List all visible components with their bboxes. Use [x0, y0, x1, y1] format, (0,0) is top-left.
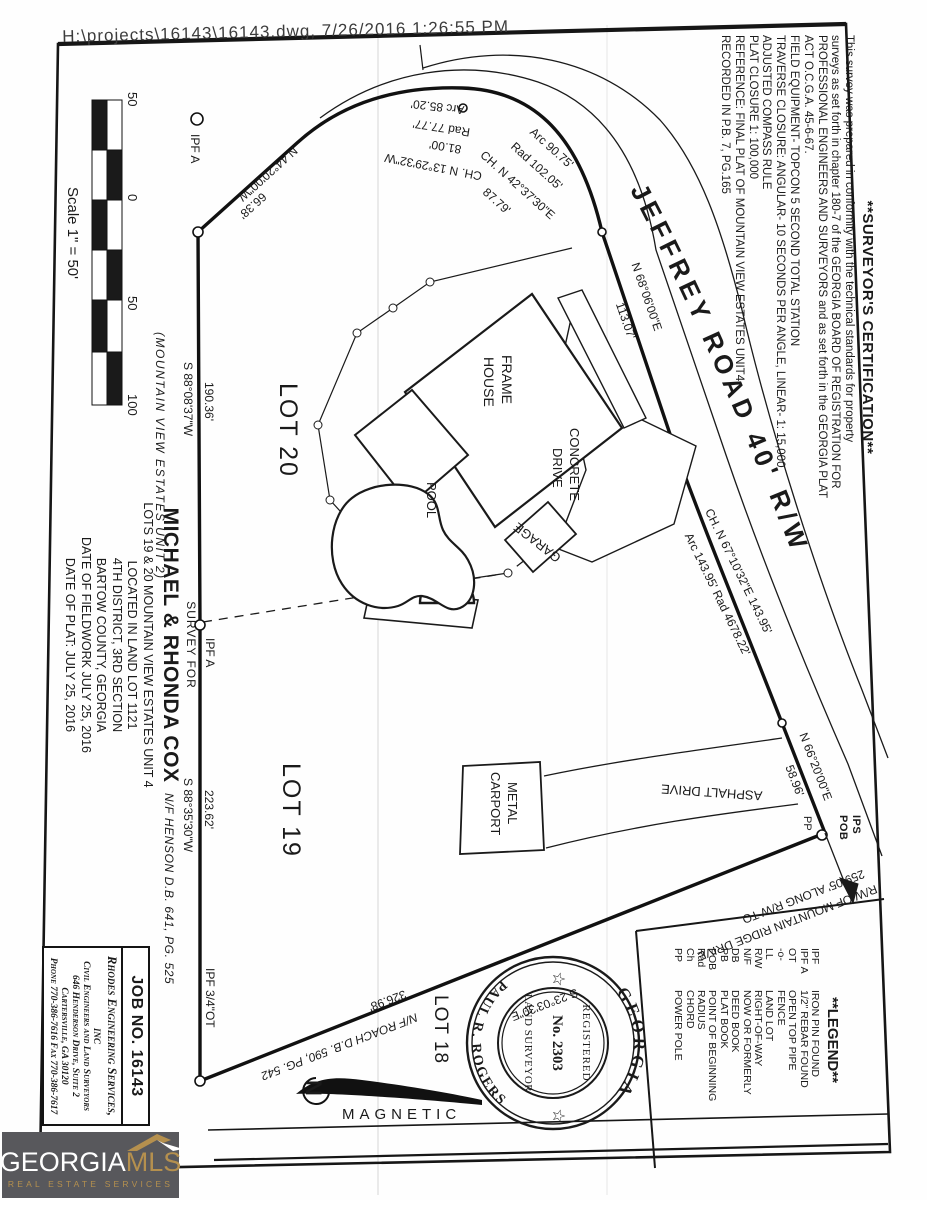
pp-label: PP	[801, 816, 813, 831]
logo-georgia-text: GEORGIA	[0, 1147, 126, 1178]
title-line: DATE OF FIELDWORK JULY 25, 2016	[78, 445, 94, 845]
legend-item: PPPOWER POLE	[672, 948, 683, 1180]
scale-caption: Scale 1" = 50'	[64, 187, 81, 279]
asphalt-drive-edge-2	[546, 804, 798, 848]
curve1-chord: CH. N 13°29'32"W	[383, 151, 483, 184]
firm-line: Phone 770-386-7616 Fax 770-386-7617	[47, 950, 58, 1122]
curve1-rad: Rad 77.77'	[412, 117, 471, 140]
south-distance: 326.98'	[367, 987, 408, 1014]
legend-item: OTOPEN TOP PIPE	[786, 948, 797, 1180]
seal-number: No. 2303	[549, 986, 566, 1100]
logo-tagline: REAL ESTATE SERVICES	[8, 1179, 173, 1189]
certification-line: ACT O.C.G.A. 45-6-67.	[800, 35, 814, 620]
scale-tick-0: 0	[125, 194, 140, 201]
legend-item: IPFIRON PIN FOUND	[809, 948, 820, 1180]
seal-title: LAND SURVEYOR	[522, 986, 534, 1100]
seal-registered: REGISTERED	[580, 986, 592, 1100]
certification-line: TRAVERSE CLOSURE: ANGULAR- 10 SECONDS PE…	[772, 35, 786, 620]
firm-name: Rhodes Engineering Services, inc	[91, 950, 119, 1122]
curve2-chord-len: 87.79'	[480, 185, 513, 217]
seal-star-bottom: ☆	[549, 1108, 568, 1123]
frame-house-label-1: FRAME	[499, 355, 515, 404]
seal-star-top: ☆	[549, 971, 568, 986]
magnetic-label: MAGNETIC	[342, 1106, 461, 1123]
certification-heading: **SURVEYOR'S CERTIFICATION**	[860, 35, 874, 620]
legend-block: IPFIRON PIN FOUND IPF A1/2" REBAR FOUND …	[820, 948, 927, 1096]
north-n-glyph: N	[301, 1080, 326, 1096]
certification-line: REFERENCE: FINAL PLAT OF MOUNTAIN VIEW E…	[731, 35, 745, 620]
firm-line: 646 Henderson Drive, Suite 2	[69, 950, 80, 1122]
ips-pob-label: IPS POB	[862, 815, 902, 841]
tangent-distance: 113.07'	[613, 300, 639, 341]
west-upper-distance: 190.36'	[202, 382, 216, 421]
west-upper-bearing: S 88°08'37"W	[181, 362, 195, 437]
certification-line: surveys as set forth in chapter 180-7 of…	[828, 35, 842, 620]
legend-item: LLLAND LOT	[763, 948, 774, 1180]
scale-tick-50a: 50	[125, 92, 140, 106]
title-line: DATE OF PLAT: JULY 25, 2016	[62, 445, 78, 845]
job-number: JOB NO. 16143	[121, 948, 148, 1124]
certification-line: RECORDED IN P.B. 7, PG.165	[717, 35, 731, 620]
asphalt-drive-label: ASPHALT DRIVE	[660, 781, 763, 803]
scale-tick-100: 100	[125, 394, 140, 416]
carport-label-2: CARPORT	[488, 772, 503, 835]
nw-bearing: N 44°20'00"W	[235, 144, 300, 205]
ipf-mid-label: IPF A	[203, 638, 217, 667]
title-line: LOTS 19 & 20 MOUNTAIN VIEW ESTATES UNIT …	[140, 445, 156, 845]
scale-tick-50b: 50	[125, 296, 140, 310]
roof-icon	[127, 1134, 183, 1157]
curve1-arc: Arc 85.20'	[410, 97, 465, 117]
certification-line: FIELD EQUIPMENT- TOPCON 5 SECOND TOTAL S…	[786, 35, 800, 620]
firm-line: Civil Engineers and Land Surveyors	[80, 950, 91, 1122]
legend-item: ChCHORD	[683, 948, 694, 1180]
survey-title-block: SURVEY FOR MICHAEL & RHONDA COX LOTS 19 …	[198, 445, 598, 581]
curve1-chord-len: 81.00'	[428, 137, 462, 156]
legend-item: PBPLAT BOOK	[717, 948, 728, 1180]
georgia-mls-logo: GEORGIAMLS REAL ESTATE SERVICES	[2, 1132, 179, 1198]
legend-item: IPF A1/2" REBAR FOUND	[797, 948, 808, 1180]
ips-label: IPS	[849, 815, 862, 855]
scale-bar	[92, 100, 122, 405]
carport-label-1: METAL	[505, 782, 520, 824]
title-line: BARTOW COUNTY, GEORGIA	[93, 445, 109, 845]
certification-block: **SURVEYOR'S CERTIFICATION** This survey…	[874, 35, 927, 192]
client-name: MICHAEL & RHONDA COX	[158, 445, 182, 845]
pob-label: POB	[836, 815, 849, 855]
west-lower-distance: 223.62'	[202, 790, 216, 829]
legend-item: RadRADIUS	[695, 948, 706, 1180]
firm-line: Cartersville, GA 30120	[58, 950, 69, 1122]
scanned-plat-page: 50 0 50 100 Scale 1" = 50' JEFFREY ROAD …	[0, 0, 927, 1200]
certification-line: ADJUSTED COMPASS RULE	[759, 35, 773, 620]
firm-title-box: JOB NO. 16143 Rhodes Engineering Service…	[150, 946, 330, 1054]
title-line: 4TH DISTRICT, 3RD SECTION	[109, 445, 125, 845]
frame-house-label-2: HOUSE	[481, 357, 497, 407]
certification-line: PROFESSIONAL ENGINEERS AND SURVEYORS and…	[814, 35, 828, 620]
legend-item: POBPOINT OF BEGINNING	[706, 948, 717, 1180]
ipf-nw-label: IPF A	[188, 134, 202, 163]
lot19-label: LOT 19	[277, 763, 305, 858]
legend-item-fence: -o-FENCE	[774, 948, 785, 1180]
legend-item: DBDEED BOOK	[729, 948, 740, 1180]
seal-inner-text: REGISTERED No. 2303 LAND SURVEYOR	[592, 986, 706, 1056]
title-line: LOCATED IN LAND LOT 1121	[124, 445, 140, 845]
asphalt-drive-edge-1	[544, 738, 782, 776]
north-arrow: N MAGNETIC	[296, 1078, 482, 1123]
legend-item: N/FNOW OR FORMERLY	[740, 948, 751, 1180]
seal-name-arc: PAUL R. ROGERS	[468, 977, 510, 1109]
certification-line: This survey was prepared in conformity w…	[841, 35, 855, 620]
lot18-label: LOT 18	[430, 995, 451, 1064]
certification-line: PLAT CLOSURE 1: 100,000	[745, 35, 759, 620]
legend-item: R/WRIGHT-OF-WAY	[752, 948, 763, 1180]
survey-for-label: SURVEY FOR	[184, 445, 198, 845]
